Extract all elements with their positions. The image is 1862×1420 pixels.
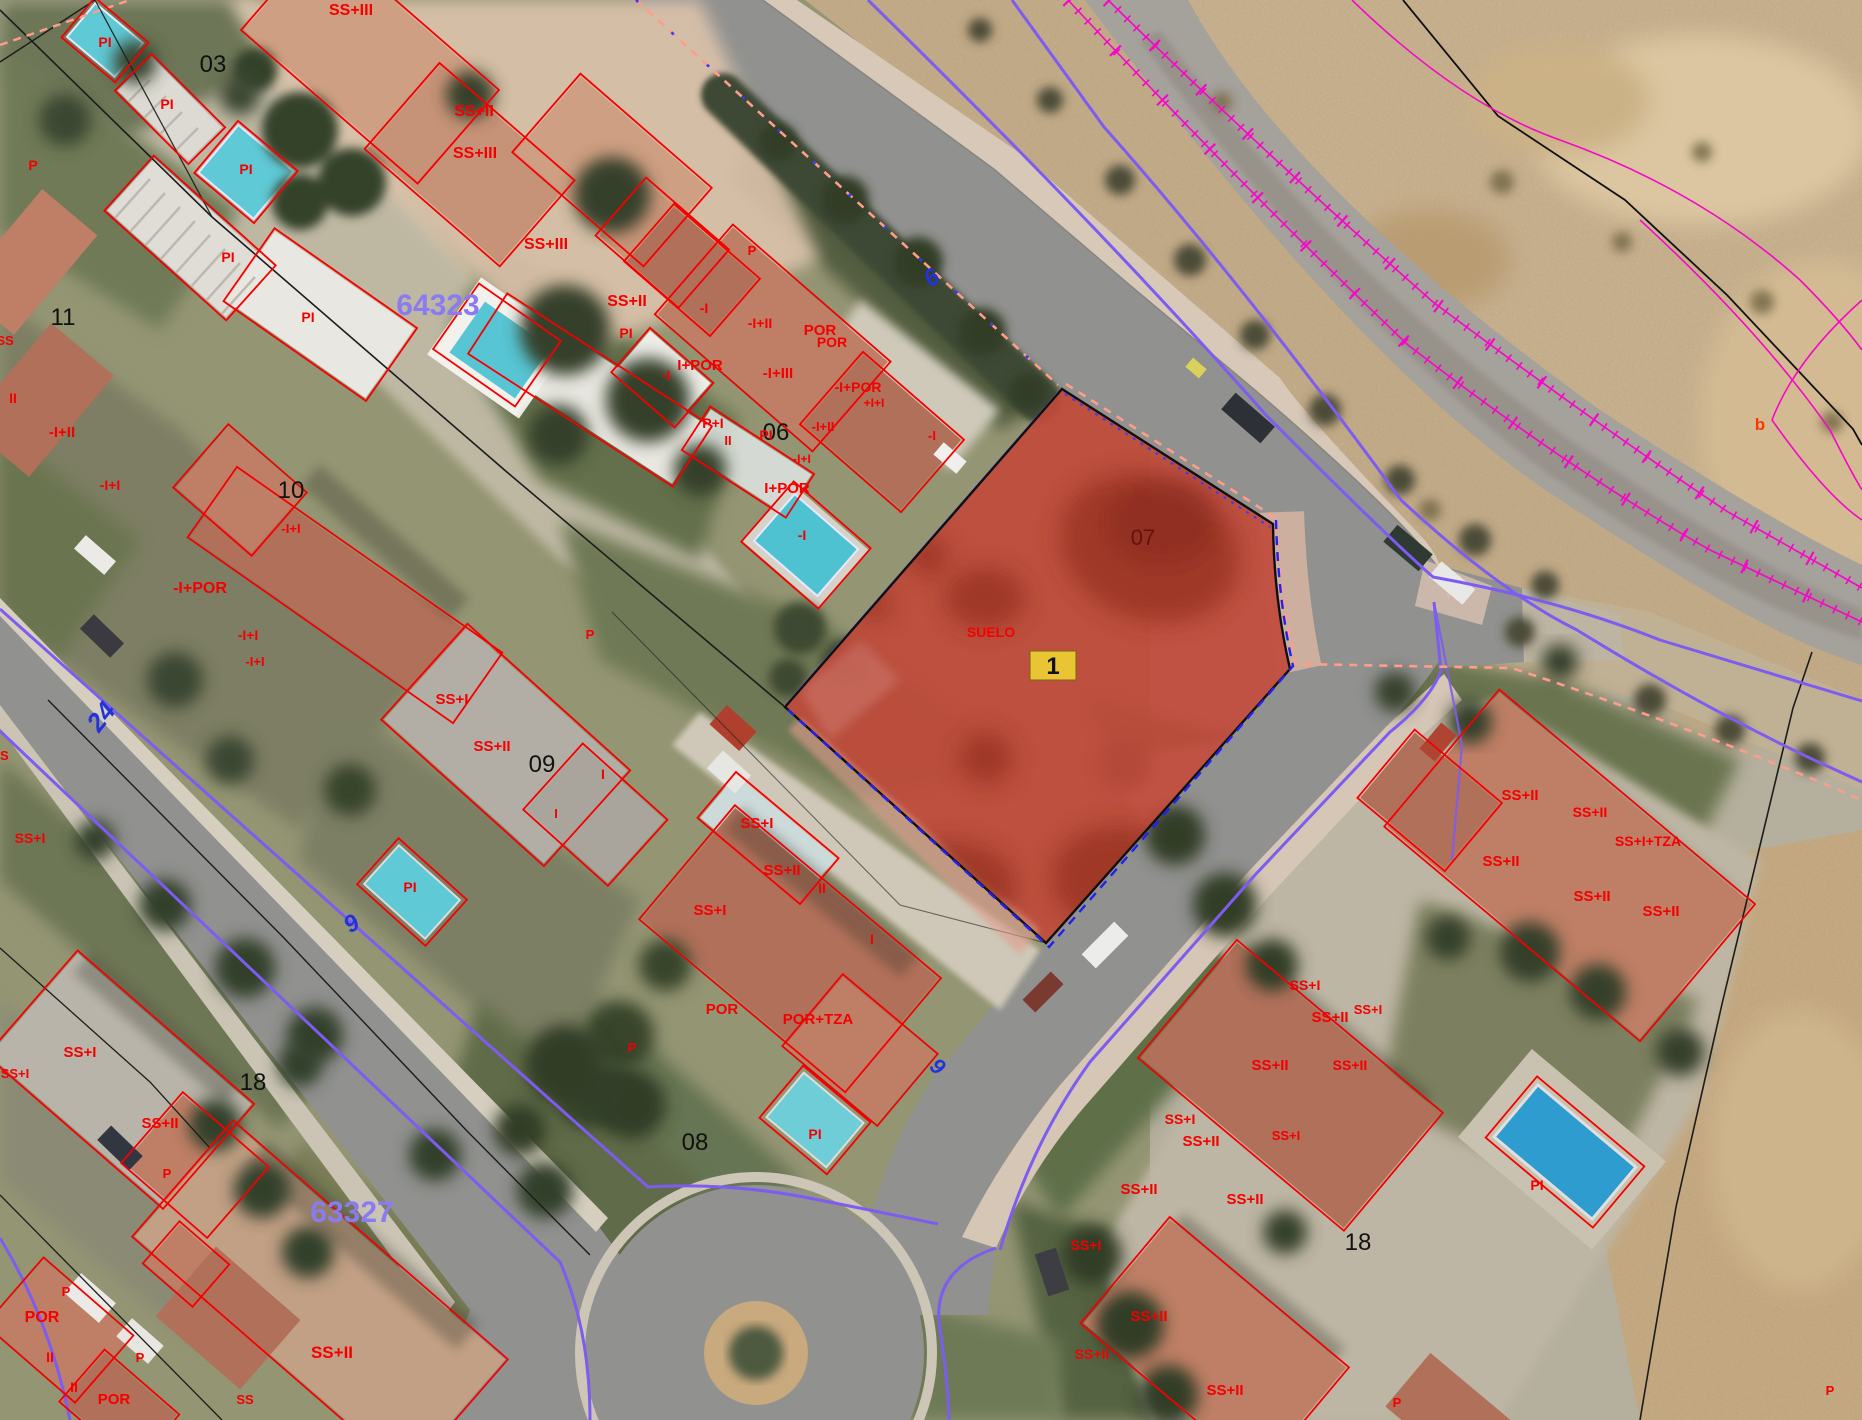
svg-text:SS+III: SS+III (524, 236, 568, 253)
svg-text:+I+I: +I+I (864, 396, 885, 410)
svg-text:-I+I: -I+I (793, 452, 811, 466)
svg-text:POR: POR (706, 1001, 739, 1018)
svg-text:11: 11 (51, 304, 76, 331)
svg-text:-I+I: -I+I (281, 521, 300, 536)
svg-text:I: I (870, 931, 874, 947)
svg-text:18: 18 (240, 1069, 267, 1096)
svg-text:SS+II: SS+II (311, 1343, 353, 1362)
svg-text:08: 08 (682, 1129, 709, 1156)
svg-text:SS+I: SS+I (1290, 977, 1321, 993)
svg-text:SS+II: SS+II (1130, 1308, 1167, 1325)
svg-text:SS+II: SS+II (1120, 1181, 1157, 1198)
svg-text:II: II (70, 1379, 78, 1395)
svg-text:SS+I: SS+I (436, 691, 469, 708)
svg-text:SS+I: SS+I (15, 830, 46, 846)
svg-text:POR: POR (817, 334, 847, 350)
svg-text:POR+TZA: POR+TZA (783, 1011, 854, 1028)
svg-text:II: II (46, 1349, 54, 1365)
svg-text:63327: 63327 (310, 1196, 393, 1229)
svg-text:SS+II: SS+II (1482, 853, 1519, 870)
svg-text:II: II (9, 390, 17, 406)
svg-text:-I+II: -I+II (812, 419, 835, 434)
svg-text:SS+II: SS+II (1251, 1057, 1288, 1074)
svg-text:09: 09 (529, 751, 556, 778)
svg-text:P: P (586, 627, 595, 642)
svg-text:PI: PI (301, 309, 314, 325)
svg-text:PI: PI (808, 1126, 821, 1142)
svg-text:SUELO: SUELO (967, 624, 1015, 640)
svg-text:P: P (136, 1350, 145, 1365)
svg-text:PI: PI (98, 34, 111, 50)
svg-text:SS: SS (0, 748, 9, 763)
svg-text:SS+II: SS+II (141, 1115, 178, 1132)
svg-text:POR: POR (25, 1309, 60, 1326)
svg-text:SS+II: SS+II (1333, 1057, 1368, 1073)
svg-text:P: P (28, 157, 37, 173)
svg-text:SS+I: SS+I (1, 1066, 30, 1081)
svg-text:07: 07 (1131, 525, 1155, 550)
svg-text:I: I (554, 806, 558, 821)
svg-text:SS+III: SS+III (453, 145, 497, 162)
svg-text:SS+I: SS+I (694, 902, 727, 919)
svg-text:P+I: P+I (702, 415, 723, 431)
svg-text:b: b (1755, 415, 1765, 434)
svg-text:II: II (724, 433, 731, 448)
svg-text:SS+I+TZA: SS+I+TZA (1615, 833, 1681, 849)
svg-text:SS+I: SS+I (1272, 1128, 1301, 1143)
svg-text:SS+I: SS+I (1071, 1237, 1102, 1253)
svg-text:SS+II: SS+II (1573, 804, 1608, 820)
svg-text:-I+II: -I+II (748, 315, 773, 331)
svg-text:I: I (601, 766, 605, 782)
svg-text:I+POR: I+POR (677, 357, 723, 374)
svg-text:SS+II: SS+II (1206, 1382, 1243, 1399)
svg-text:PI: PI (160, 96, 173, 112)
svg-text:-I: -I (700, 300, 709, 316)
svg-text:-I+II: -I+II (49, 424, 75, 441)
svg-text:-I+III: -I+III (763, 365, 793, 382)
svg-text:64323: 64323 (396, 289, 479, 322)
svg-text:PI: PI (1530, 1177, 1543, 1193)
svg-text:POR: POR (98, 1391, 131, 1408)
svg-text:SS+II: SS+II (607, 293, 647, 310)
svg-text:SS+II: SS+II (1573, 888, 1610, 905)
svg-text:-I: -I (662, 367, 671, 383)
svg-text:-I: -I (928, 428, 936, 443)
svg-text:-I+I: -I+I (238, 627, 259, 643)
svg-text:SS+II: SS+II (1182, 1133, 1219, 1150)
svg-text:SS+II: SS+II (1311, 1009, 1348, 1026)
svg-text:SS+II: SS+II (454, 103, 494, 120)
svg-text:18: 18 (1345, 1229, 1372, 1256)
svg-text:SS+II: SS+II (1642, 903, 1679, 920)
svg-text:SS+II: SS+II (473, 738, 510, 755)
svg-text:I+POR: I+POR (764, 480, 810, 497)
svg-text:SS+I: SS+I (1354, 1002, 1383, 1017)
svg-text:PI: PI (239, 161, 252, 177)
svg-text:-I: -I (798, 527, 807, 543)
svg-text:PI: PI (403, 879, 416, 895)
svg-text:P: P (62, 1284, 71, 1299)
svg-text:SS: SS (236, 1392, 254, 1407)
svg-text:SS+III: SS+III (329, 2, 373, 19)
svg-text:PI: PI (759, 427, 772, 443)
svg-text:P: P (628, 1040, 637, 1055)
svg-text:II: II (818, 880, 826, 896)
svg-text:SS+II: SS+II (1501, 787, 1538, 804)
svg-text:P: P (1393, 1395, 1402, 1410)
svg-text:10: 10 (278, 477, 305, 504)
svg-text:P: P (1826, 1383, 1835, 1398)
svg-text:-I+I: -I+I (100, 477, 121, 493)
svg-text:PI: PI (619, 325, 632, 341)
svg-text:SS: SS (0, 333, 14, 348)
svg-text:-I+POR: -I+POR (834, 379, 881, 395)
svg-text:1: 1 (1046, 653, 1059, 680)
svg-text:P: P (748, 243, 757, 258)
svg-text:-I+I: -I+I (245, 654, 264, 669)
svg-text:PI: PI (221, 249, 234, 265)
svg-text:SS+I: SS+I (1165, 1111, 1196, 1127)
svg-text:P: P (163, 1166, 172, 1181)
svg-text:SS+I: SS+I (741, 815, 774, 832)
svg-text:SS+II: SS+II (1226, 1191, 1263, 1208)
svg-text:SS+I: SS+I (64, 1044, 97, 1061)
svg-text:-I+POR: -I+POR (173, 580, 227, 597)
svg-text:SS+II: SS+II (763, 862, 800, 879)
svg-text:03: 03 (200, 51, 227, 78)
svg-text:SS+II: SS+II (1075, 1346, 1110, 1362)
